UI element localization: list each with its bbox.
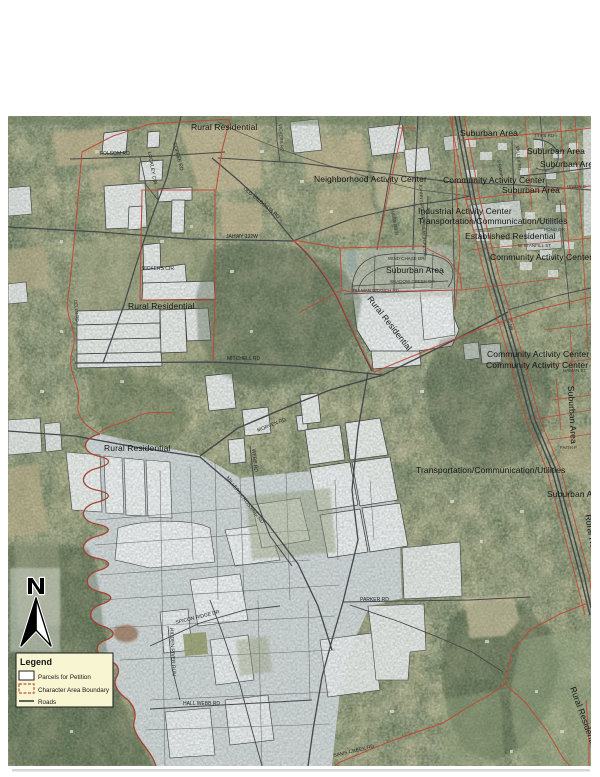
svg-text:Established Residential: Established Residential	[465, 231, 556, 241]
svg-text:Transportation/Communication/U: Transportation/Communication/Utilities	[418, 216, 567, 226]
svg-text:Suburban Area: Suburban Area	[502, 185, 560, 195]
svg-text:Community Activity Center: Community Activity Center	[487, 349, 589, 359]
svg-text:Rural Residential: Rural Residential	[104, 443, 170, 453]
svg-text:VICKERS CIR: VICKERS CIR	[142, 266, 174, 272]
svg-text:Rural Residential: Rural Residential	[191, 122, 257, 132]
svg-text:Suburban Area: Suburban Area	[386, 265, 444, 275]
svg-text:Suburban Area: Suburban Area	[540, 159, 598, 169]
svg-text:Community Activity Center: Community Activity Center	[490, 252, 592, 262]
svg-text:WIND CHASE DR: WIND CHASE DR	[388, 256, 425, 261]
svg-text:W STANFILL ST: W STANFILL ST	[518, 243, 551, 248]
svg-text:Transportation/Communication/U: Transportation/Communication/Utilities	[416, 465, 565, 475]
svg-text:Character Area Boundary: Character Area Boundary	[38, 687, 110, 694]
svg-text:Suburban Ar: Suburban Ar	[547, 489, 595, 499]
svg-text:Legend: Legend	[20, 657, 52, 667]
svg-text:HALL WEBB RD: HALL WEBB RD	[183, 701, 220, 707]
svg-text:SHADOW CREEK DR: SHADOW CREEK DR	[390, 279, 436, 284]
svg-text:FAITH P: FAITH P	[560, 445, 577, 450]
svg-text:Rural Residential: Rural Residential	[128, 301, 194, 311]
svg-text:Neighborhood Activity Center: Neighborhood Activity Center	[314, 174, 427, 184]
svg-text:TILLMAN BRANCH RD: TILLMAN BRANCH RD	[352, 288, 400, 293]
svg-text:Suburban Area: Suburban Area	[527, 146, 585, 156]
svg-text:Community Activity Center: Community Activity Center	[443, 175, 545, 185]
svg-text:Industrial Activity Center: Industrial Activity Center	[418, 206, 512, 216]
svg-text:Suburban Area: Suburban Area	[460, 128, 518, 138]
svg-text:POND DR: POND DR	[544, 227, 566, 232]
svg-text:MITCHELL RD: MITCHELL RD	[227, 356, 261, 362]
svg-text:Roads: Roads	[38, 699, 56, 706]
svg-text:UNION C: UNION C	[567, 184, 587, 189]
svg-text:PARKER RD: PARKER RD	[360, 597, 389, 603]
svg-text:FOLSOM RD: FOLSOM RD	[100, 151, 130, 157]
svg-text:TTY'S RD: TTY'S RD	[534, 133, 555, 138]
svg-text:JAHWY 122W: JAHWY 122W	[226, 234, 258, 240]
svg-text:HAMAN ST: HAMAN ST	[563, 368, 587, 373]
svg-text:Parcels for Petition: Parcels for Petition	[38, 674, 91, 681]
